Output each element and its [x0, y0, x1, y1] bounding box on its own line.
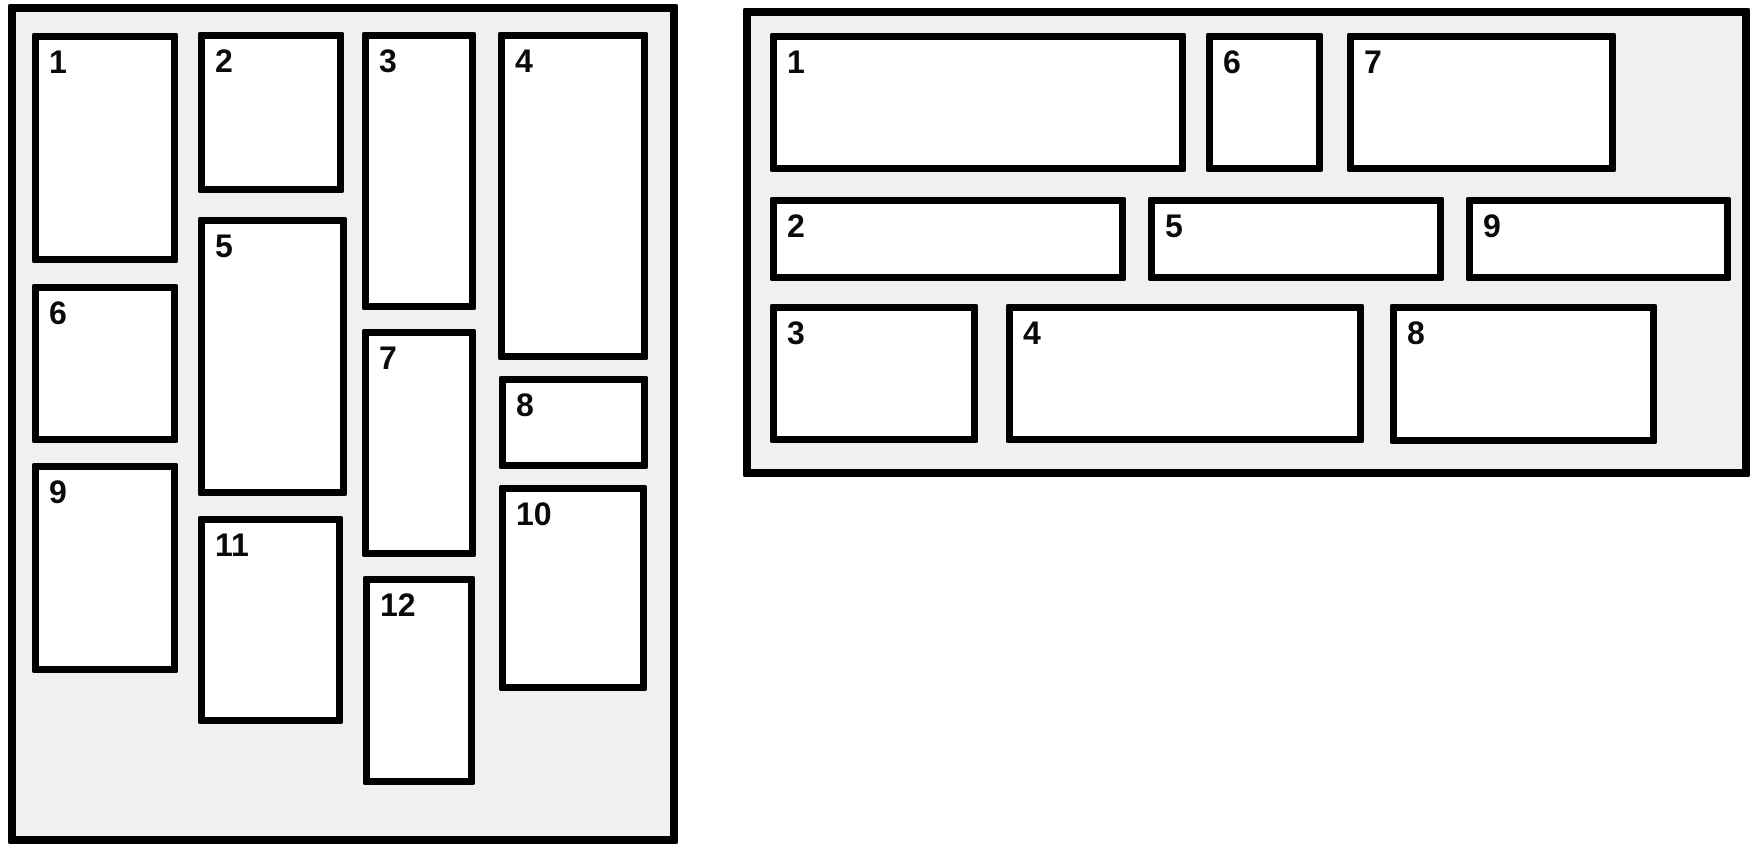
- box-number-label: 1: [49, 45, 67, 80]
- box-number-label: 10: [516, 497, 552, 532]
- masonry-box-horizontal-masonry-9: 9: [1466, 197, 1731, 281]
- box-number-label: 7: [1364, 45, 1382, 80]
- masonry-box-vertical-masonry-8: 8: [499, 376, 648, 469]
- masonry-box-vertical-masonry-9: 9: [32, 463, 178, 673]
- box-number-label: 2: [787, 209, 805, 244]
- masonry-box-horizontal-masonry-8: 8: [1390, 304, 1657, 444]
- vertical-masonry-panel: 123456789101112: [8, 4, 678, 844]
- masonry-box-vertical-masonry-3: 3: [362, 32, 476, 310]
- box-number-label: 9: [49, 475, 67, 510]
- masonry-box-horizontal-masonry-2: 2: [770, 197, 1126, 281]
- box-number-label: 2: [215, 44, 233, 79]
- box-number-label: 7: [379, 341, 397, 376]
- masonry-box-vertical-masonry-11: 11: [198, 516, 343, 724]
- box-number-label: 3: [379, 44, 397, 79]
- box-number-label: 8: [1407, 316, 1425, 351]
- box-number-label: 12: [380, 588, 416, 623]
- box-number-label: 9: [1483, 209, 1501, 244]
- masonry-box-vertical-masonry-1: 1: [32, 33, 178, 263]
- masonry-box-vertical-masonry-7: 7: [362, 329, 476, 557]
- masonry-box-vertical-masonry-2: 2: [198, 32, 344, 193]
- masonry-box-horizontal-masonry-1: 1: [770, 33, 1186, 172]
- box-number-label: 6: [49, 296, 67, 331]
- masonry-box-vertical-masonry-12: 12: [363, 576, 475, 785]
- masonry-box-horizontal-masonry-7: 7: [1347, 33, 1616, 172]
- box-number-label: 3: [787, 316, 805, 351]
- masonry-diagram-stage: 123456789101112 123456789: [0, 0, 1755, 852]
- box-number-label: 4: [1023, 316, 1041, 351]
- box-number-label: 5: [215, 229, 233, 264]
- masonry-box-vertical-masonry-4: 4: [498, 32, 648, 360]
- masonry-box-horizontal-masonry-5: 5: [1148, 197, 1444, 281]
- masonry-box-vertical-masonry-10: 10: [499, 485, 647, 691]
- box-number-label: 8: [516, 388, 534, 423]
- masonry-box-vertical-masonry-6: 6: [32, 284, 178, 443]
- box-number-label: 6: [1223, 45, 1241, 80]
- box-number-label: 11: [215, 528, 249, 563]
- horizontal-masonry-panel: 123456789: [743, 8, 1750, 477]
- masonry-box-horizontal-masonry-6: 6: [1206, 33, 1323, 172]
- masonry-box-vertical-masonry-5: 5: [198, 217, 347, 496]
- box-number-label: 4: [515, 44, 533, 79]
- box-number-label: 1: [787, 45, 805, 80]
- box-number-label: 5: [1165, 209, 1183, 244]
- masonry-box-horizontal-masonry-4: 4: [1006, 304, 1364, 443]
- masonry-box-horizontal-masonry-3: 3: [770, 304, 978, 443]
